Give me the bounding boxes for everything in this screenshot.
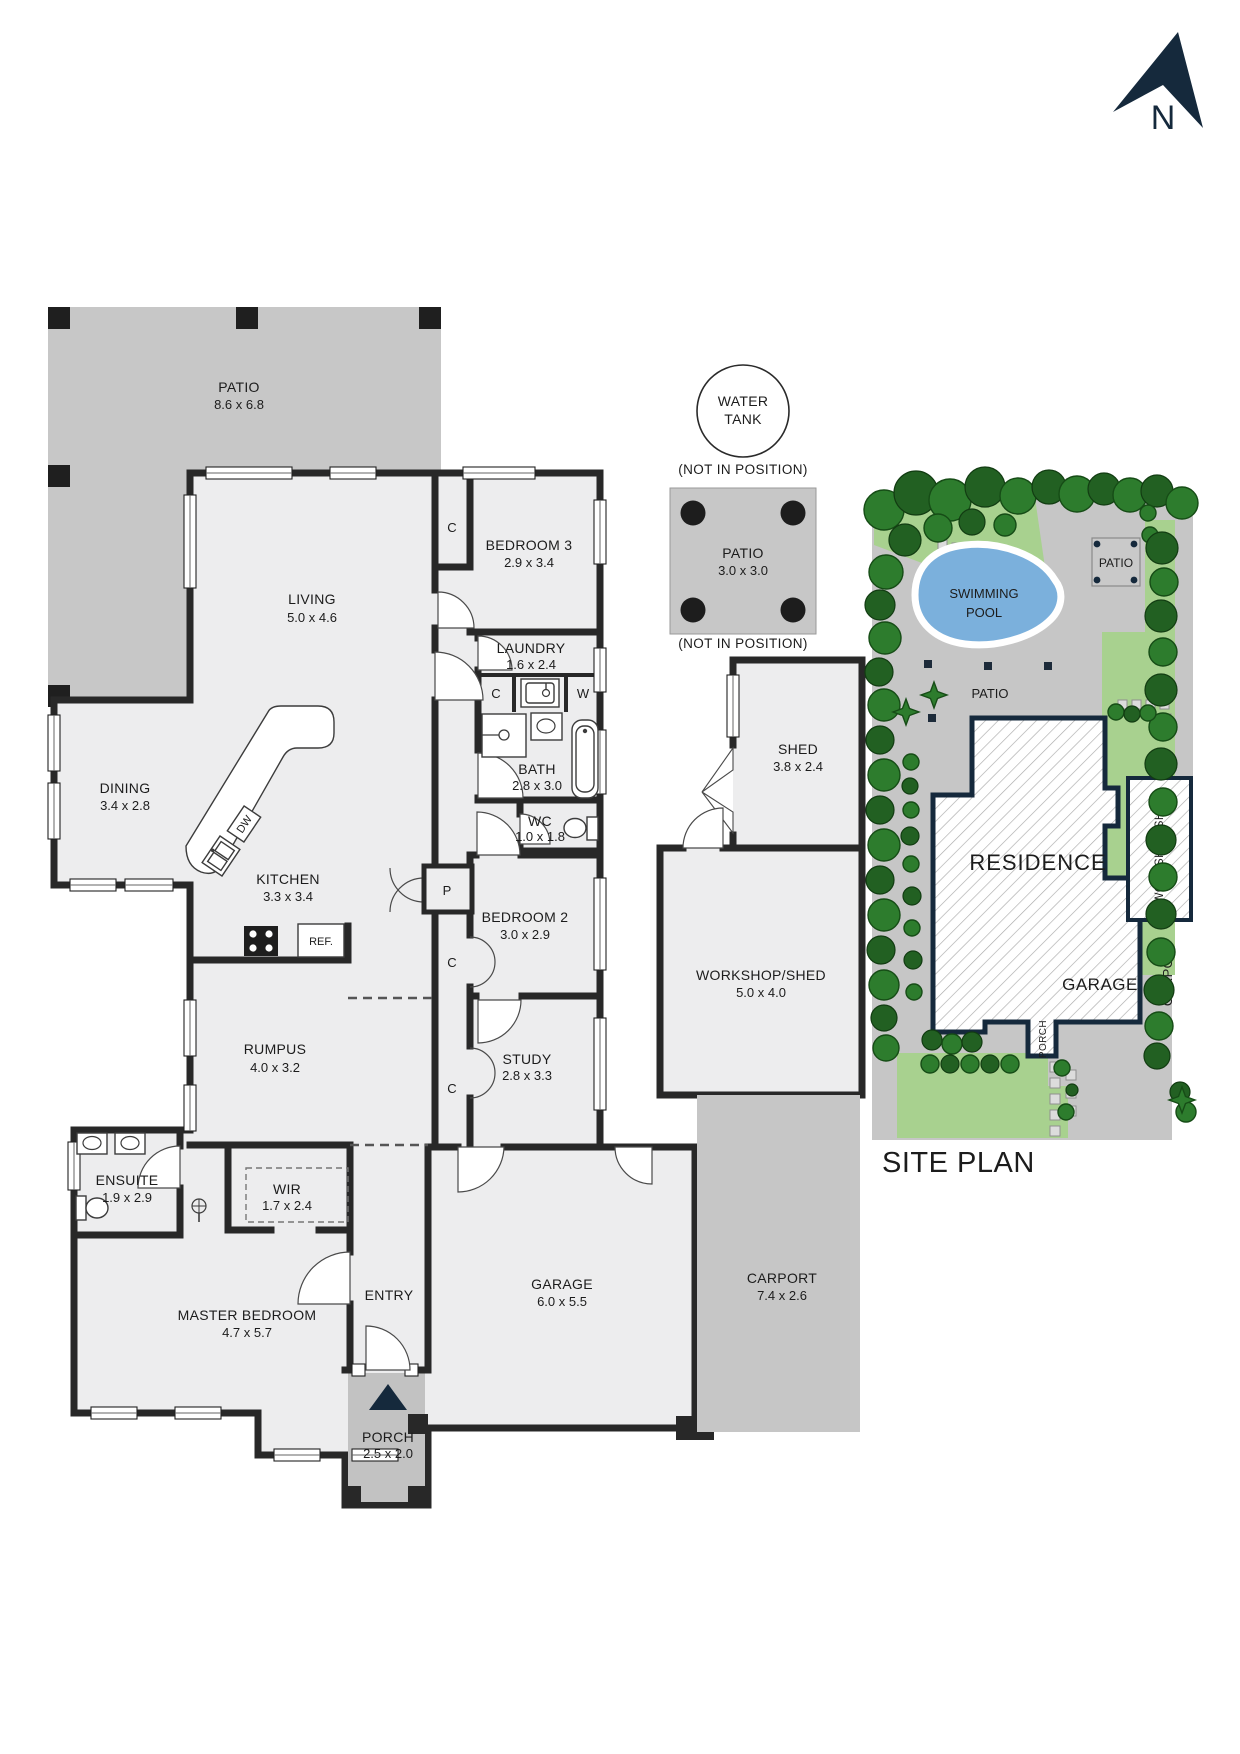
dining-name: DINING	[100, 780, 151, 796]
pantry-label: P	[443, 883, 452, 898]
bath-dims: 2.8 x 3.0	[512, 778, 562, 793]
floorplan-canvas: N PATIO 8.6 x 6.8	[0, 0, 1240, 1754]
water-tank-line1: WATER	[718, 393, 769, 409]
pantry: P	[424, 866, 472, 912]
wir-name: WIR	[273, 1181, 301, 1197]
laundry-name: LAUNDRY	[497, 640, 566, 656]
site-plan: SWIMMING POOL PATIO PATIO RESIDENCE GARA…	[864, 467, 1198, 1179]
site-plan-title: SITE PLAN	[882, 1147, 1035, 1179]
shed-dims: 3.8 x 2.4	[773, 759, 823, 774]
carport-name: CARPORT	[747, 1270, 817, 1286]
bedroom2-dims: 3.0 x 2.9	[500, 927, 550, 942]
master-bedroom-dims: 4.7 x 5.7	[222, 1325, 272, 1340]
porch-name: PORCH	[362, 1429, 414, 1445]
master-bedroom-name: MASTER BEDROOM	[178, 1307, 317, 1323]
site-patio-rear-label: PATIO	[1099, 556, 1133, 570]
garage-name: GARAGE	[531, 1276, 593, 1292]
bedroom3-closet-label: C	[447, 520, 456, 535]
wc-dims: 1.0 x 1.8	[515, 829, 565, 844]
carport-dims: 7.4 x 2.6	[757, 1288, 807, 1303]
washer-label: W	[577, 686, 590, 701]
wc-toilet-icon	[564, 817, 598, 840]
study-dims: 2.8 x 3.3	[502, 1068, 552, 1083]
study-name: STUDY	[503, 1051, 552, 1067]
living-dims: 5.0 x 4.6	[287, 610, 337, 625]
kitchen-name: KITCHEN	[256, 871, 320, 887]
patio-detached: PATIO 3.0 x 3.0 (NOT IN POSITION)	[670, 488, 816, 651]
wir-dims: 1.7 x 2.4	[262, 1198, 312, 1213]
water-tank-line2: TANK	[724, 411, 762, 427]
living-name: LIVING	[288, 591, 336, 607]
site-patio-court-label: PATIO	[971, 686, 1008, 701]
bedroom3-name: BEDROOM 3	[486, 537, 573, 553]
water-tank-note: (NOT IN POSITION)	[678, 462, 808, 477]
patio-detached-name: PATIO	[722, 545, 763, 561]
bedroom2-name: BEDROOM 2	[482, 909, 569, 925]
entry-name: ENTRY	[365, 1287, 414, 1303]
pool-line2: POOL	[966, 605, 1002, 620]
ensuite-name: ENSUITE	[96, 1172, 159, 1188]
structure-workshop: WORKSHOP/SHED 5.0 x 4.0	[660, 808, 862, 1095]
kitchen-dims: 3.3 x 3.4	[263, 889, 313, 904]
structure-shed: SHED 3.8 x 2.4	[702, 660, 862, 848]
north-label: N	[1151, 99, 1176, 137]
bedroom2-closet-label: C	[447, 955, 456, 970]
site-residence-label: RESIDENCE	[969, 850, 1106, 875]
shed-door-leaf	[702, 748, 733, 792]
workshop-shed-name: WORKSHOP/SHED	[696, 967, 826, 983]
ensuite-dims: 1.9 x 2.9	[102, 1190, 152, 1205]
water-tank: WATER TANK (NOT IN POSITION)	[678, 365, 808, 477]
patio-detached-note: (NOT IN POSITION)	[678, 636, 808, 651]
refrigerator: REF.	[298, 924, 344, 957]
structure-carport: CARPORT 7.4 x 2.6	[697, 1095, 860, 1432]
bath-name: BATH	[518, 761, 556, 777]
porch-dims: 2.5 x 2.0	[363, 1446, 413, 1461]
wc-name: WC	[528, 813, 552, 829]
laundry-closet-label: C	[491, 686, 500, 701]
rumpus-dims: 4.0 x 3.2	[250, 1060, 300, 1075]
site-porch-label: PORCH	[1038, 1020, 1049, 1058]
floorplan-page: N PATIO 8.6 x 6.8	[0, 0, 1240, 1754]
patio-main-dims: 8.6 x 6.8	[214, 397, 264, 412]
rumpus-name: RUMPUS	[244, 1041, 306, 1057]
north-arrow-icon: N	[1113, 32, 1203, 137]
laundry-tub-icon	[521, 679, 559, 707]
pool-line1: SWIMMING	[949, 586, 1018, 601]
site-garage-label: GARAGE	[1062, 975, 1138, 994]
laundry-dims: 1.6 x 2.4	[506, 657, 556, 672]
shed-name: SHED	[778, 741, 818, 757]
patio-main-name: PATIO	[218, 379, 259, 395]
study-closet-label: C	[447, 1081, 456, 1096]
workshop-shed-dims: 5.0 x 4.0	[736, 985, 786, 1000]
swimming-pool: SWIMMING POOL	[915, 544, 1061, 645]
bedroom3-dims: 2.9 x 3.4	[504, 555, 554, 570]
refrigerator-label: REF.	[309, 936, 333, 948]
site-patio-rear: PATIO	[1092, 538, 1140, 586]
dining-dims: 3.4 x 2.8	[100, 798, 150, 813]
patio-detached-dims: 3.0 x 3.0	[718, 563, 768, 578]
stove-icon	[244, 926, 278, 956]
garage-dims: 6.0 x 5.5	[537, 1294, 587, 1309]
